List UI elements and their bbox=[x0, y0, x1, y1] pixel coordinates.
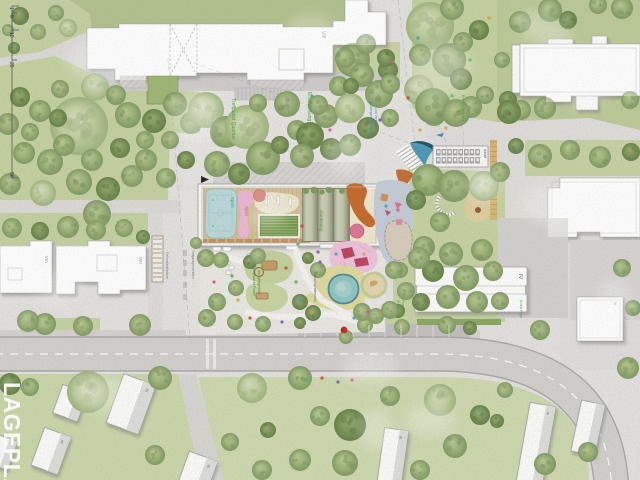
svg-text:LAGEPLAN: LAGEPLAN bbox=[0, 382, 25, 480]
